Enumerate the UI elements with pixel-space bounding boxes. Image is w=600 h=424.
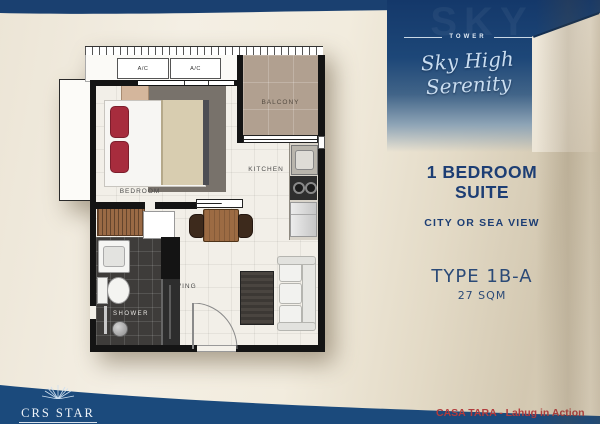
- toilet-bowl: [107, 277, 130, 304]
- pillow: [110, 106, 129, 138]
- ac-unit-1: A/C: [117, 58, 169, 79]
- wall: [93, 202, 145, 209]
- sofa-armrest: [277, 322, 316, 331]
- stove-burner: [305, 182, 317, 194]
- crs-star-logo: CRS STAR: [8, 384, 108, 423]
- sofa: [302, 259, 316, 329]
- refrigerator: [290, 202, 317, 237]
- kitchen-sink-basin: [295, 150, 314, 170]
- vanity-basin: [103, 246, 125, 267]
- wall: [318, 55, 325, 352]
- wall: [90, 345, 197, 352]
- stove-burner: [293, 182, 305, 194]
- dresser: [143, 211, 175, 239]
- pillow: [110, 141, 129, 173]
- wall: [155, 202, 197, 209]
- wall: [161, 237, 180, 279]
- bed-footboard: [203, 100, 209, 185]
- bedroom-sliding-door: [196, 199, 243, 208]
- sofa-cushion: [279, 283, 302, 304]
- wall: [236, 345, 325, 352]
- entry-door-swing: [193, 303, 238, 350]
- floor-plan: A/C A/C BALCONY SHOWER KITCHEN: [0, 0, 600, 424]
- bedroom-label: BEDROOM: [100, 188, 180, 195]
- kitchen-window: [318, 136, 325, 149]
- crs-star-label: CRS STAR: [19, 406, 97, 423]
- kitchen-label: KITCHEN: [240, 166, 292, 173]
- balcony-sliding-door: [243, 135, 318, 143]
- sofa-armrest: [277, 256, 316, 265]
- exterior-ledge: [59, 79, 94, 201]
- dining-chair: [238, 214, 253, 238]
- dining-chair: [189, 214, 204, 238]
- balcony-label: BALCONY: [261, 85, 299, 106]
- shower-label: SHOWER: [103, 311, 159, 317]
- dining-table: [203, 209, 239, 242]
- flyer-page: SKY TOWER Sky High Serenity 1 BEDROOM SU…: [0, 0, 600, 424]
- wardrobe: [97, 205, 145, 236]
- sunburst-icon: [40, 384, 76, 399]
- shower-head: [112, 321, 128, 337]
- bedroom-window: [138, 81, 234, 85]
- balcony-area: BALCONY: [243, 55, 318, 136]
- project-tagline: CASA TARA - Lahug in Action: [436, 407, 598, 419]
- wall: [237, 55, 243, 143]
- bed-blanket: [161, 100, 205, 185]
- coffee-table: [240, 271, 274, 325]
- ac-unit-2: A/C: [170, 58, 221, 79]
- wall-niche: [90, 306, 96, 319]
- bathroom-door-handle: [169, 285, 171, 339]
